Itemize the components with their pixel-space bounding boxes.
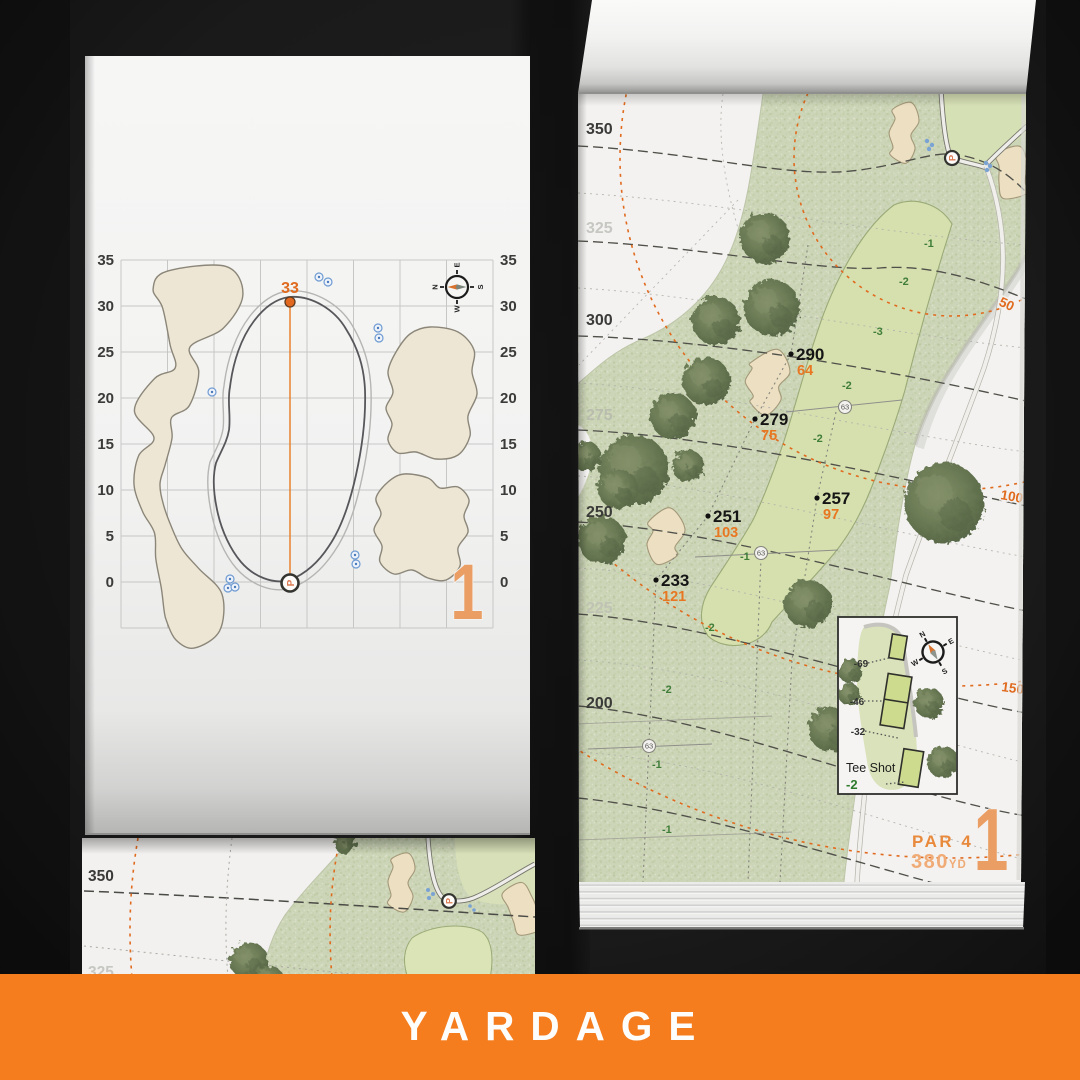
svg-text:-2: -2 — [813, 433, 823, 445]
svg-text:1: 1 — [451, 548, 484, 636]
svg-text:N: N — [431, 284, 440, 289]
svg-text:279: 279 — [760, 410, 788, 429]
svg-text:-2: -2 — [662, 684, 672, 696]
svg-text:S: S — [476, 284, 485, 289]
svg-text:250: 250 — [586, 504, 613, 521]
svg-text:-1: -1 — [652, 759, 662, 771]
svg-text:PAR 4: PAR 4 — [912, 832, 973, 851]
svg-text:W: W — [453, 305, 462, 313]
svg-text:63: 63 — [757, 549, 765, 558]
svg-text:30: 30 — [500, 298, 517, 315]
svg-text:30: 30 — [97, 298, 114, 315]
svg-text:20: 20 — [500, 390, 517, 407]
svg-text:P: P — [445, 898, 455, 904]
svg-text:-2: -2 — [899, 276, 909, 288]
svg-text:15: 15 — [500, 436, 517, 453]
svg-text:350: 350 — [88, 868, 114, 885]
svg-text:10: 10 — [500, 482, 517, 499]
svg-text:64: 64 — [797, 363, 813, 379]
svg-text:225: 225 — [586, 600, 613, 617]
svg-text:-69: -69 — [854, 659, 869, 670]
svg-text:-1: -1 — [740, 551, 750, 563]
svg-text:5: 5 — [500, 528, 508, 545]
svg-text:P: P — [948, 154, 959, 161]
svg-text:-32: -32 — [851, 727, 866, 738]
svg-text:275: 275 — [586, 407, 613, 424]
svg-text:257: 257 — [822, 489, 850, 508]
svg-text:35: 35 — [500, 252, 517, 269]
svg-text:325: 325 — [586, 220, 613, 237]
svg-text:20: 20 — [97, 390, 114, 407]
svg-text:63: 63 — [645, 742, 653, 751]
svg-text:103: 103 — [714, 525, 738, 541]
svg-text:200: 200 — [586, 695, 613, 712]
svg-text:E: E — [453, 262, 462, 267]
svg-text:0: 0 — [500, 574, 508, 591]
svg-text:25: 25 — [97, 344, 114, 361]
svg-text:5: 5 — [106, 528, 114, 545]
svg-text:121: 121 — [662, 589, 686, 605]
svg-text:P: P — [286, 579, 297, 586]
svg-text:35: 35 — [97, 252, 114, 269]
svg-text:290: 290 — [796, 345, 824, 364]
svg-text:-2: -2 — [842, 380, 852, 392]
svg-text:-1: -1 — [924, 238, 934, 250]
svg-text:233: 233 — [661, 571, 689, 590]
svg-text:1: 1 — [974, 792, 1009, 890]
svg-text:251: 251 — [713, 507, 741, 526]
svg-text:63: 63 — [841, 403, 849, 412]
svg-text:25: 25 — [500, 344, 517, 361]
svg-text:33: 33 — [281, 280, 299, 297]
svg-text:350: 350 — [586, 121, 613, 138]
svg-text:97: 97 — [823, 507, 839, 523]
svg-text:YARDAGE: YARDAGE — [401, 1003, 712, 1049]
svg-text:15: 15 — [97, 436, 114, 453]
svg-text:Tee Shot: Tee Shot — [846, 761, 896, 775]
svg-text:-2: -2 — [705, 622, 715, 634]
svg-text:-2: -2 — [846, 777, 858, 792]
svg-text:-46: -46 — [850, 697, 865, 708]
svg-text:10: 10 — [97, 482, 114, 499]
svg-text:-3: -3 — [873, 326, 883, 338]
svg-text:-1: -1 — [662, 824, 672, 836]
svg-text:0: 0 — [106, 574, 114, 591]
svg-text:75: 75 — [761, 428, 777, 444]
svg-text:300: 300 — [586, 312, 613, 329]
